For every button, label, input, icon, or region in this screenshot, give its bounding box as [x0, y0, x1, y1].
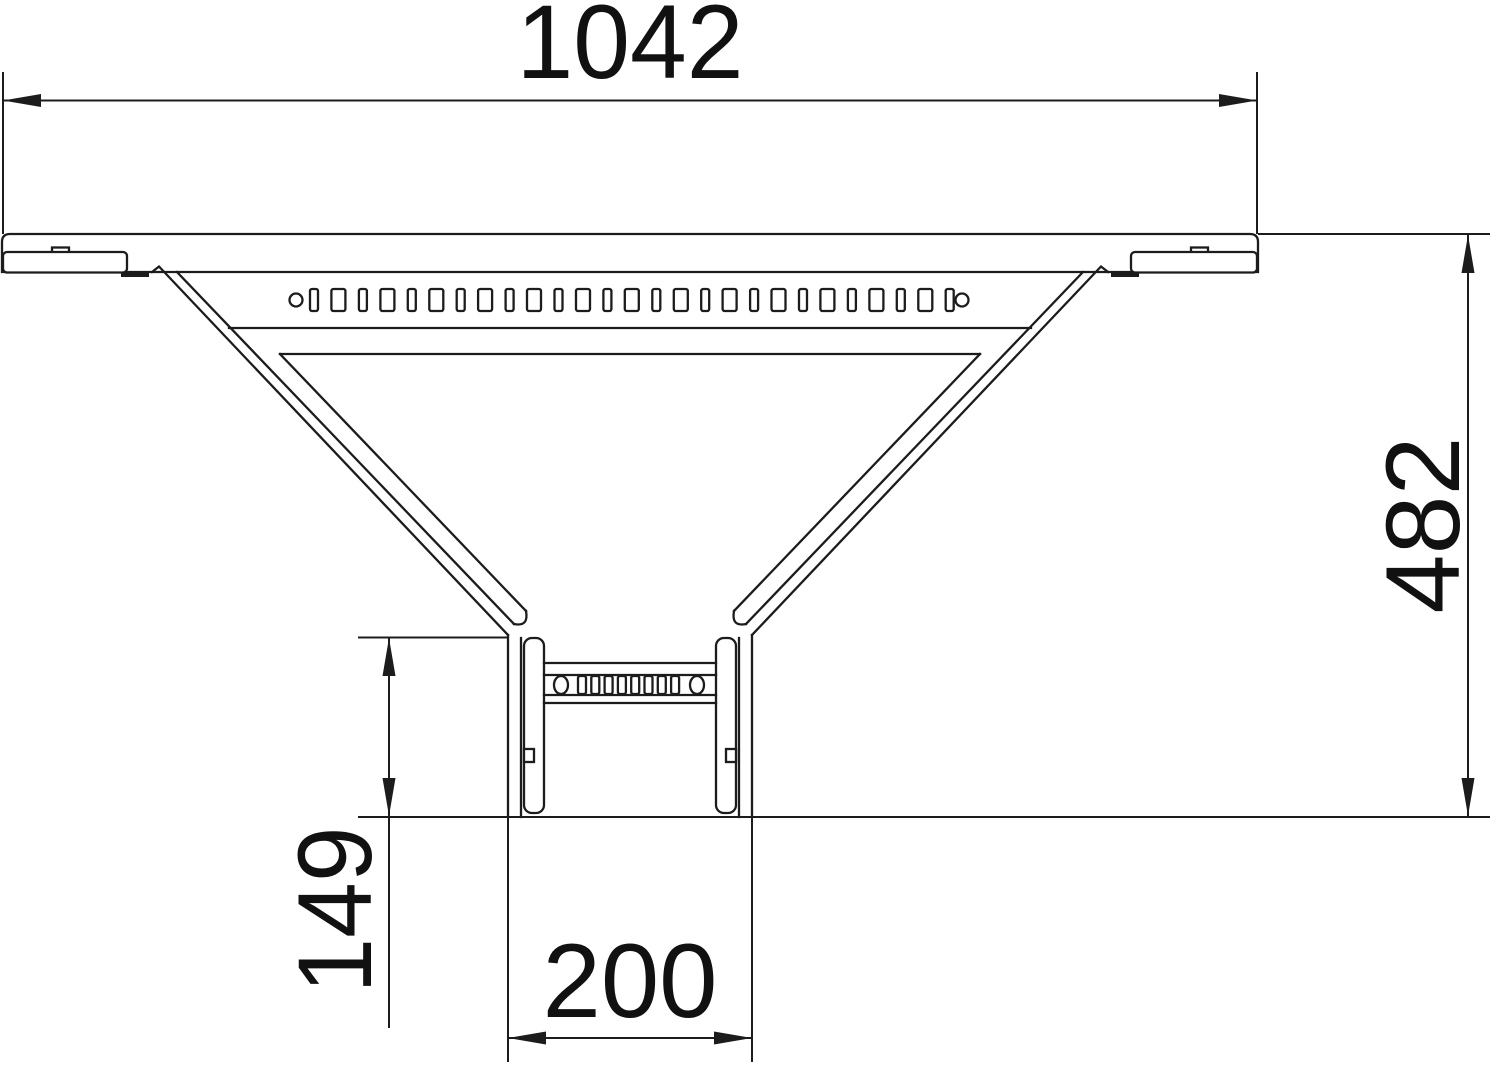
dimension-arrows	[3, 94, 1475, 1045]
dimension-label-overall-width: 1042	[517, 0, 744, 101]
perforation-slot	[869, 289, 883, 311]
perforation-slot	[380, 289, 394, 311]
perforation-slot	[674, 289, 688, 311]
dimension-label-rail-length: 149	[277, 827, 394, 994]
perforation-slot	[310, 289, 318, 311]
perforation-slot	[750, 289, 758, 311]
rung-hole-right	[690, 676, 704, 694]
perforation-slot	[946, 289, 954, 311]
perforation-slot	[408, 289, 416, 311]
rung-slot	[658, 676, 666, 694]
perforation-slot	[506, 289, 514, 311]
left-side-rail	[508, 635, 544, 817]
arrow-rail-bottom	[383, 778, 396, 816]
right-connector	[1111, 248, 1257, 278]
perforation-slot	[625, 289, 639, 311]
perforation-slot	[723, 289, 737, 311]
left-joint-weld	[121, 272, 149, 278]
left-strut-inner	[177, 272, 514, 624]
perforation-slot	[772, 289, 786, 311]
right-joint-weld	[1111, 272, 1139, 278]
left-rail-hole	[524, 749, 534, 762]
perforation-slot	[652, 289, 660, 311]
rung-slot	[671, 676, 679, 694]
dimension-labels: 1042 482 149 200	[277, 0, 1482, 1040]
arrow-width-right	[1219, 94, 1257, 107]
rung-hole-left	[554, 676, 568, 694]
left-flange-edge	[280, 354, 526, 611]
left-connector	[3, 248, 149, 278]
arrow-width-left	[3, 94, 41, 107]
technical-drawing: 1042 482 149 200	[0, 0, 1500, 1070]
perforation-circle-left	[290, 294, 303, 307]
perforation-slot	[457, 289, 465, 311]
tee-body	[2, 234, 1258, 817]
perforation-slot	[918, 289, 932, 311]
left-strut-end-cap	[514, 611, 527, 624]
perforation-slot	[359, 289, 367, 311]
perforation-slot	[848, 289, 856, 311]
rung-slot	[618, 676, 626, 694]
right-strut-end-cap	[734, 611, 747, 624]
perforation-slot	[429, 289, 443, 311]
right-strut-outer	[752, 267, 1108, 636]
main-run-rail	[2, 234, 1258, 272]
right-side-rail	[716, 635, 752, 817]
right-rail-hole	[726, 749, 736, 762]
arrow-branch-right	[714, 1032, 752, 1045]
rung-slot	[605, 676, 613, 694]
arrow-rail-top	[383, 638, 396, 676]
perforation-circle-right	[956, 294, 969, 307]
main-run-perforations	[290, 289, 969, 311]
left-strut-outer	[152, 267, 508, 636]
perforation-slot	[331, 289, 345, 311]
branch-funnel	[152, 267, 1108, 636]
perforation-slot	[555, 289, 563, 311]
dimension-label-overall-height: 482	[1365, 437, 1482, 614]
rung-slot	[631, 676, 639, 694]
perforation-slot	[576, 289, 590, 311]
arrow-height-top	[1462, 235, 1475, 273]
perforation-slot	[820, 289, 834, 311]
rung-slot-row	[578, 676, 679, 694]
perforation-slot	[897, 289, 905, 311]
rung-slot	[591, 676, 599, 694]
arrow-height-bottom	[1462, 778, 1475, 816]
dimension-label-branch-width: 200	[543, 923, 718, 1040]
perforation-slot	[527, 289, 541, 311]
perforation-slot	[701, 289, 709, 311]
rung-slot	[578, 676, 586, 694]
right-strut-inner	[746, 272, 1083, 624]
technical-drawing-page: 1042 482 149 200	[0, 0, 1500, 1070]
perforation-slot	[799, 289, 807, 311]
arrow-branch-left	[508, 1032, 546, 1045]
perforation-slot-row	[310, 289, 954, 311]
dimension-lines	[3, 72, 1490, 1062]
perforation-slot	[603, 289, 611, 311]
right-flange-edge	[734, 354, 980, 611]
branch-rung	[544, 663, 716, 703]
rung-slot	[645, 676, 653, 694]
perforation-slot	[478, 289, 492, 311]
